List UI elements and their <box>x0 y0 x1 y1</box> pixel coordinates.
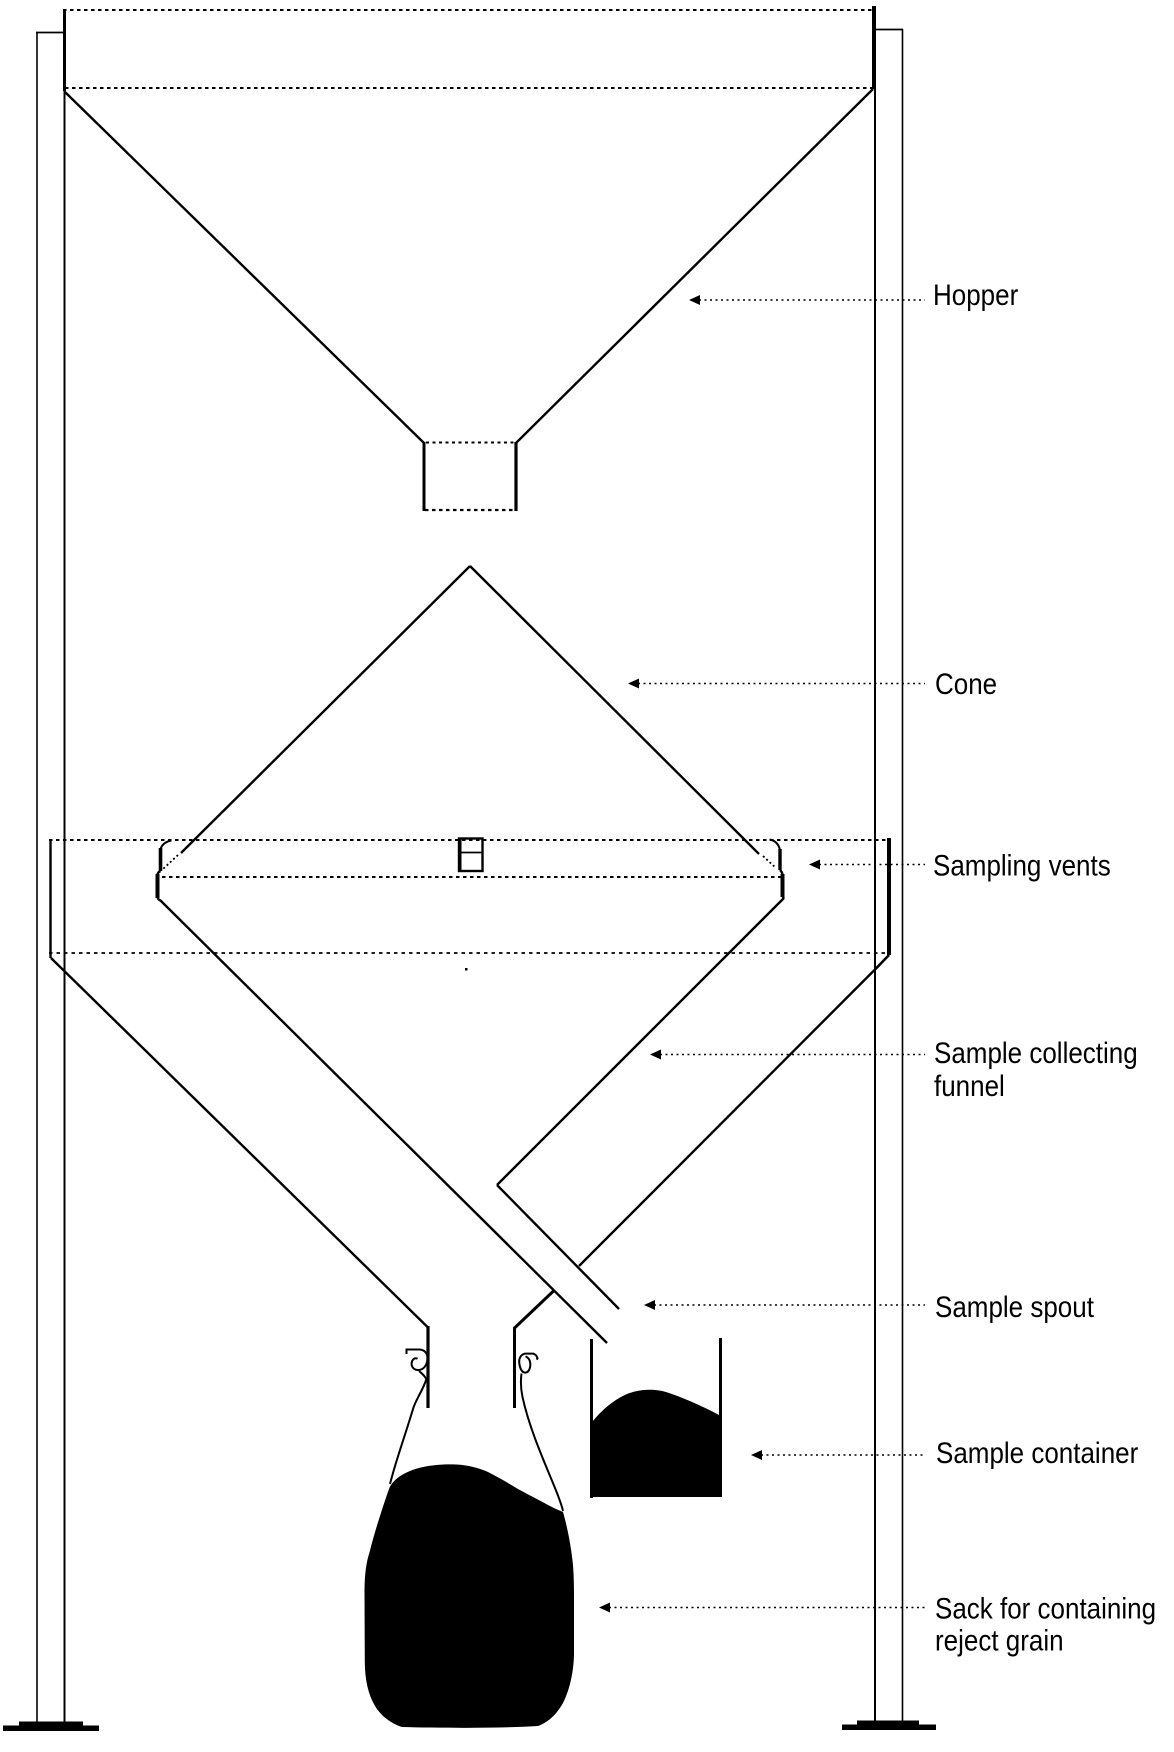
svg-text:Cone: Cone <box>935 667 997 700</box>
svg-text:Sack for containing: Sack for containing <box>935 1592 1156 1625</box>
svg-text:Hopper: Hopper <box>933 278 1018 311</box>
svg-text:Sample collecting: Sample collecting <box>934 1036 1138 1069</box>
svg-text:Sample spout: Sample spout <box>935 1290 1094 1323</box>
svg-text:Sample container: Sample container <box>936 1436 1138 1469</box>
svg-text:reject grain: reject grain <box>935 1624 1064 1657</box>
svg-text:Sampling vents: Sampling vents <box>933 849 1111 882</box>
svg-text:funnel: funnel <box>934 1069 1005 1102</box>
